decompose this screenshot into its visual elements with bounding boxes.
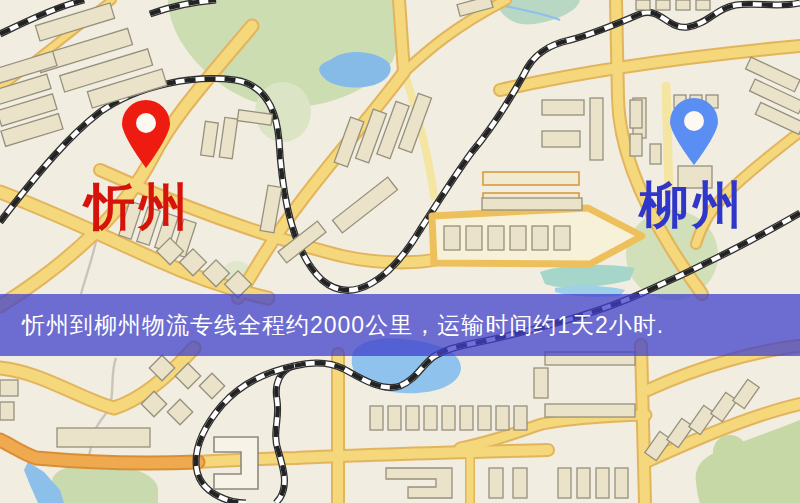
destination-city-label: 柳州 — [637, 177, 745, 233]
origin-city-label: 忻州 — [82, 179, 191, 235]
route-info-text: 忻州到柳州物流专线全程约2000公里，运输时间约1天2小时. — [22, 310, 664, 341]
route-info-banner: 忻州到柳州物流专线全程约2000公里，运输时间约1天2小时. — [0, 294, 800, 356]
logistics-route-map: 忻州 柳州 忻州到柳州物流专线全程约2000公里，运输时间约1天2小时. — [0, 0, 800, 503]
map-canvas: 忻州 柳州 — [0, 0, 800, 503]
